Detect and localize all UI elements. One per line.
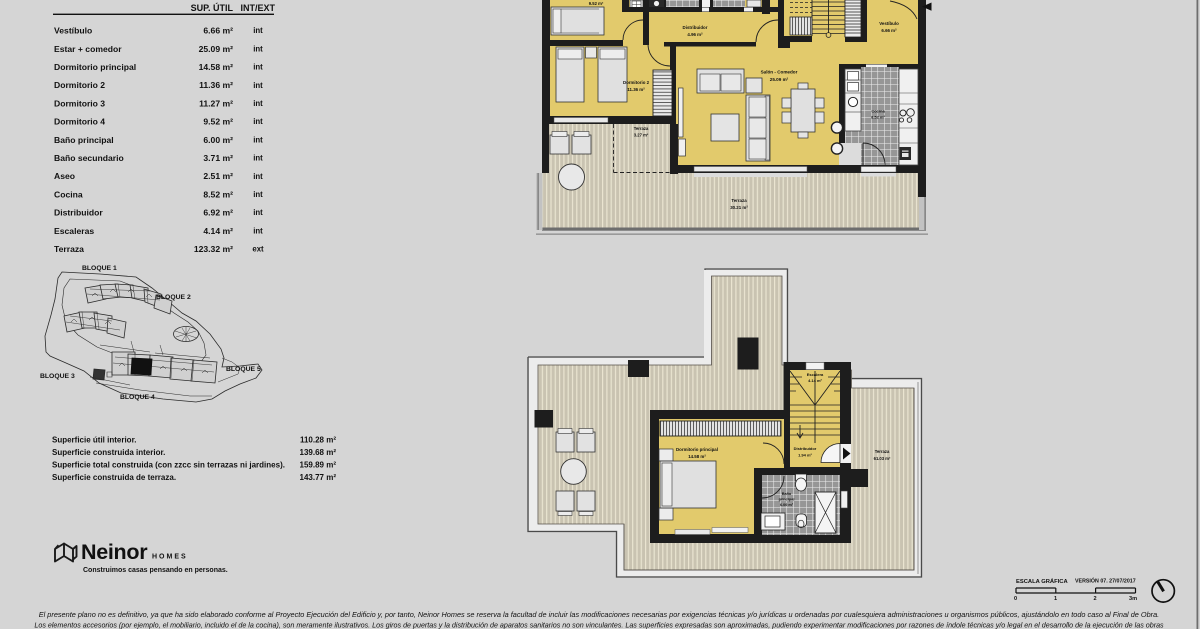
svg-text:VERSIÓN 07. 27/07/2017: VERSIÓN 07. 27/07/2017 — [1075, 577, 1136, 585]
svg-text:int: int — [253, 190, 263, 199]
svg-text:6.66 m²: 6.66 m² — [881, 28, 897, 33]
svg-text:BLOQUE 4: BLOQUE 4 — [120, 394, 155, 401]
svg-text:Dormitorio 2: Dormitorio 2 — [54, 80, 105, 90]
svg-text:El presente plano no es defini: El presente plano no es definitivo, ya q… — [39, 610, 1159, 619]
svg-text:4.14 m²: 4.14 m² — [203, 226, 233, 236]
svg-text:Distribuidor: Distribuidor — [683, 25, 708, 30]
svg-text:4.14 m²: 4.14 m² — [808, 378, 822, 383]
svg-text:25.09 m²: 25.09 m² — [770, 77, 789, 82]
svg-text:Distribuidor: Distribuidor — [794, 446, 817, 451]
svg-text:25.09 m²: 25.09 m² — [199, 44, 234, 54]
svg-text:Baño secundario: Baño secundario — [54, 153, 124, 163]
svg-text:9.52 m²: 9.52 m² — [203, 117, 233, 127]
svg-text:BLOQUE 1: BLOQUE 1 — [82, 265, 117, 272]
svg-text:Cocina: Cocina — [54, 189, 83, 199]
svg-text:6.00 m²: 6.00 m² — [780, 503, 794, 507]
svg-text:Superficie útil interior.: Superficie útil interior. — [52, 436, 136, 445]
svg-text:Estar + comedor: Estar + comedor — [54, 44, 122, 54]
svg-text:4.96 m²: 4.96 m² — [687, 32, 703, 37]
svg-text:14.58 m²: 14.58 m² — [199, 62, 234, 72]
svg-text:3m: 3m — [1129, 596, 1137, 602]
svg-text:3.27 m²: 3.27 m² — [634, 133, 649, 138]
svg-text:8.52 m²: 8.52 m² — [203, 189, 233, 199]
svg-text:Terraza: Terraza — [875, 449, 890, 454]
svg-text:110.28 m²: 110.28 m² — [300, 436, 336, 445]
svg-text:SUP. ÚTIL: SUP. ÚTIL — [191, 2, 234, 13]
svg-text:Baño principal: Baño principal — [54, 135, 114, 145]
svg-text:Baño: Baño — [782, 492, 792, 496]
svg-text:159.89 m²: 159.89 m² — [300, 461, 337, 470]
svg-text:int: int — [253, 117, 263, 126]
svg-text:Superficie total construida (c: Superficie total construida (con zzcc si… — [52, 461, 285, 470]
svg-text:Dormitorio 4: Dormitorio 4 — [54, 117, 105, 127]
svg-text:Superficie construida interior: Superficie construida interior. — [52, 448, 165, 457]
svg-text:61.03 m²: 61.03 m² — [874, 456, 891, 461]
svg-text:int: int — [253, 26, 263, 35]
svg-text:ESCALA GRÁFICA: ESCALA GRÁFICA — [1016, 578, 1068, 585]
svg-text:30.21 m²: 30.21 m² — [730, 205, 748, 210]
svg-text:int: int — [253, 63, 263, 72]
svg-text:int: int — [253, 172, 263, 181]
svg-text:Superficie construida de terra: Superficie construida de terraza. — [52, 473, 176, 482]
svg-text:Salón - Comedor: Salón - Comedor — [761, 70, 798, 75]
svg-text:Vestíbulo: Vestíbulo — [54, 26, 92, 36]
svg-text:11.36 m²: 11.36 m² — [199, 80, 233, 90]
svg-text:Construimos casas pensando en: Construimos casas pensando en personas. — [83, 567, 228, 574]
svg-text:int: int — [253, 44, 263, 53]
svg-text:int: int — [253, 135, 263, 144]
svg-text:int: int — [253, 99, 263, 108]
svg-text:Vestíbulo: Vestíbulo — [879, 21, 899, 26]
svg-text:6.66 m²: 6.66 m² — [203, 26, 233, 36]
svg-text:6.92 m²: 6.92 m² — [203, 208, 233, 218]
svg-text:Escaleras: Escaleras — [54, 226, 94, 236]
svg-text:139.68 m²: 139.68 m² — [300, 448, 337, 457]
svg-text:ext: ext — [252, 245, 264, 254]
svg-text:Neinor: Neinor — [81, 540, 148, 564]
svg-text:Terraza: Terraza — [634, 126, 649, 131]
svg-text:Dormitorio 2: Dormitorio 2 — [623, 80, 650, 85]
svg-text:14.58 m²: 14.58 m² — [688, 454, 706, 459]
svg-text:2: 2 — [1094, 596, 1097, 602]
svg-text:BLOQUE 2: BLOQUE 2 — [156, 294, 191, 301]
svg-text:INT/EXT: INT/EXT — [240, 3, 275, 13]
svg-text:11.27 m²: 11.27 m² — [199, 98, 233, 108]
svg-text:3.71 m²: 3.71 m² — [203, 153, 233, 163]
svg-text:Escalera: Escalera — [807, 372, 824, 377]
svg-text:11.36 m²: 11.36 m² — [627, 87, 645, 92]
svg-text:principal: principal — [779, 498, 795, 502]
svg-text:Dormitorio principal: Dormitorio principal — [676, 447, 718, 452]
svg-text:int: int — [253, 81, 263, 90]
svg-text:int: int — [253, 208, 263, 217]
svg-text:Los elementos accesorios (por: Los elementos accesorios (por ejemplo, e… — [34, 621, 1164, 629]
svg-text:Aseo: Aseo — [54, 171, 75, 181]
svg-text:8.52 m²: 8.52 m² — [871, 115, 885, 120]
svg-text:9.52 m²: 9.52 m² — [589, 1, 604, 6]
svg-text:Terraza: Terraza — [54, 244, 84, 254]
svg-text:6.00 m²: 6.00 m² — [203, 135, 233, 145]
svg-text:123.32 m²: 123.32 m² — [194, 244, 233, 254]
svg-text:HOMES: HOMES — [152, 554, 188, 561]
svg-text:1.94 m²: 1.94 m² — [798, 453, 812, 458]
svg-text:BLOQUE 3: BLOQUE 3 — [40, 373, 75, 380]
svg-text:143.77 m²: 143.77 m² — [300, 473, 337, 482]
svg-text:int: int — [253, 226, 263, 235]
svg-text:1: 1 — [1054, 596, 1057, 602]
svg-text:0: 0 — [1014, 596, 1017, 602]
svg-text:int: int — [253, 154, 263, 163]
svg-text:Dormitorio 3: Dormitorio 3 — [54, 98, 105, 108]
svg-text:Cocina: Cocina — [871, 109, 885, 114]
svg-text:Terraza: Terraza — [731, 198, 747, 203]
svg-text:Dormitorio principal: Dormitorio principal — [54, 62, 136, 72]
svg-text:2.51 m²: 2.51 m² — [203, 171, 233, 181]
svg-text:BLOQUE 5: BLOQUE 5 — [226, 366, 261, 373]
svg-text:Distribuidor: Distribuidor — [54, 208, 103, 218]
